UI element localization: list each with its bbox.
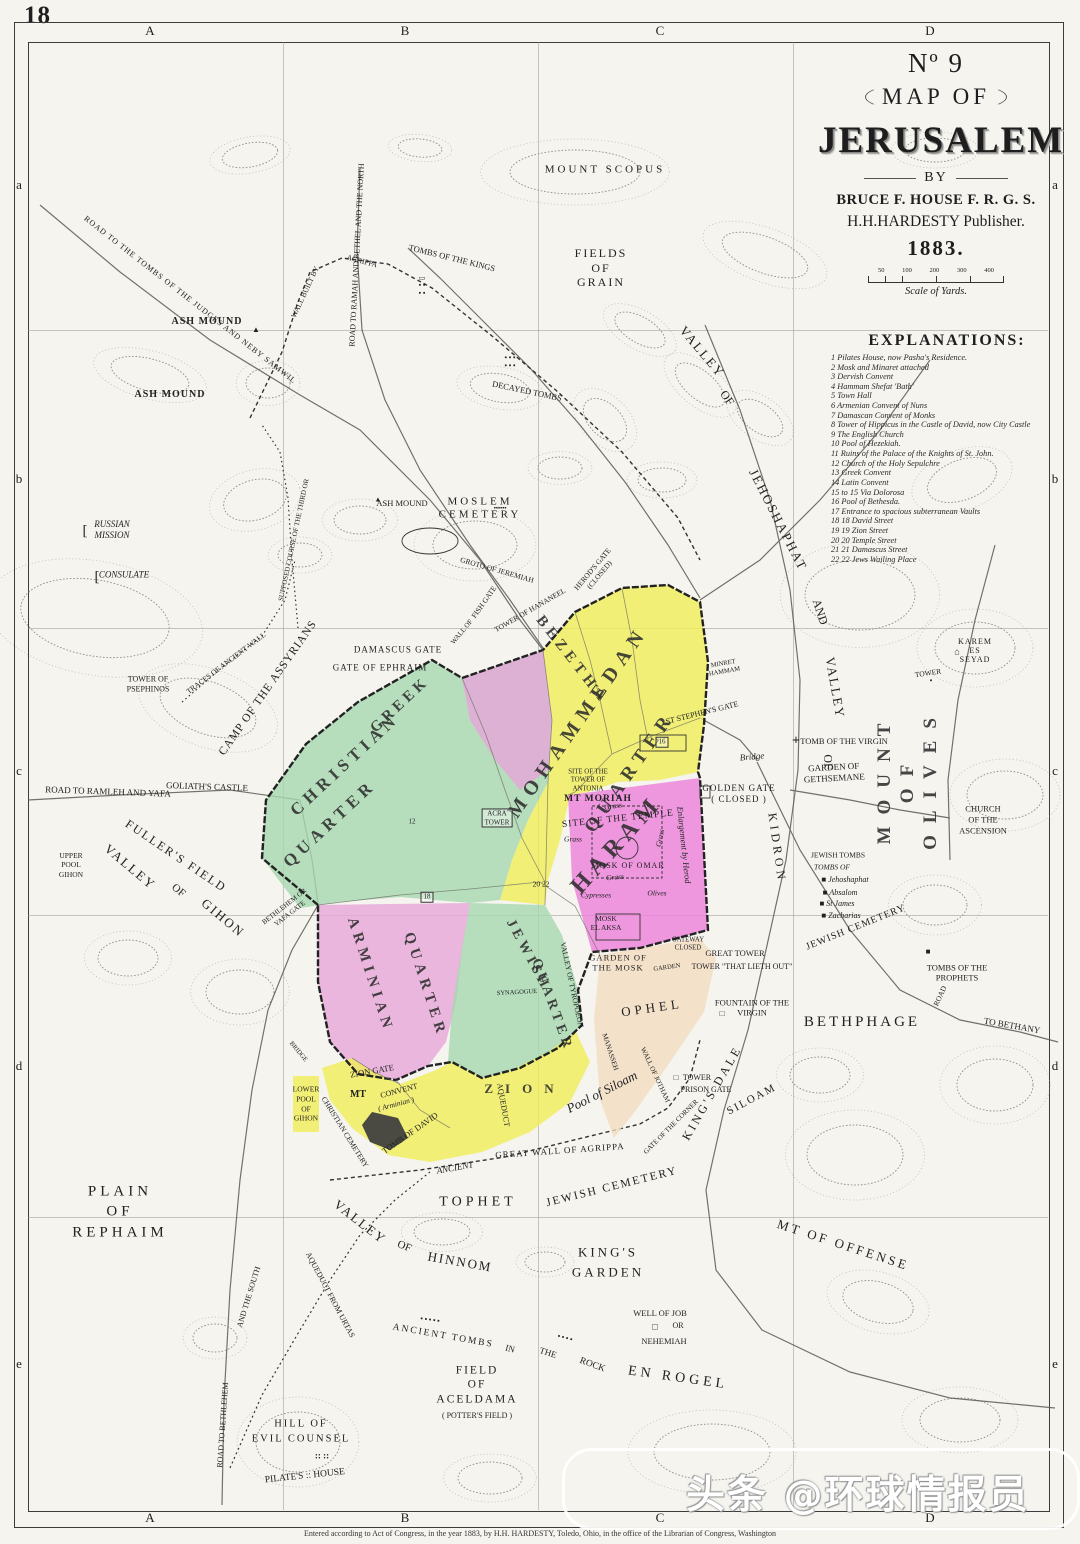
explanation-item: 10 Pool of Hezekiah. bbox=[831, 439, 1063, 449]
map-number: Nº 9 bbox=[818, 48, 1054, 79]
copyright-line: Entered according to Act of Congress, in… bbox=[0, 1529, 1080, 1538]
explanation-item: 4 Hammam Shefat 'Bath' bbox=[831, 382, 1063, 392]
by-label: BY bbox=[818, 170, 1054, 186]
explanation-item: 13 Greek Convent bbox=[831, 468, 1063, 478]
explanation-item: 21 21 Damascus Street bbox=[831, 545, 1063, 555]
map-page: 18 AABBCCDDaabbccddee bbox=[0, 0, 1080, 1544]
explanation-item: 9 The English Church bbox=[831, 430, 1063, 440]
explanation-item: 5 Town Hall bbox=[831, 391, 1063, 401]
explanation-item: 22 22 Jews Wailing Place bbox=[831, 555, 1063, 565]
explanation-item: 11 Ruins of the Palace of the Knights of… bbox=[831, 449, 1063, 459]
explanation-item: 17 Entrance to spacious subterranean Vau… bbox=[831, 507, 1063, 517]
explanation-item: 19 19 Zion Street bbox=[831, 526, 1063, 536]
explanation-item: 8 Tower of Hippicus in the Castle of Dav… bbox=[831, 420, 1063, 430]
explanation-item: 2 Mosk and Minaret attached bbox=[831, 363, 1063, 373]
scale-ticks: 50 100 200 300 400 bbox=[818, 267, 1054, 274]
explanation-item: 18 18 David Street bbox=[831, 516, 1063, 526]
explanation-item: 15 to 15 Via Dolorosa bbox=[831, 488, 1063, 498]
explanation-item: 7 Damascan Convent of Monks bbox=[831, 411, 1063, 421]
scale-label: Scale of Yards. bbox=[818, 286, 1054, 297]
explanation-item: 16 Pool of Bethesda. bbox=[831, 497, 1063, 507]
publisher-label: H.H.HARDESTY Publisher. bbox=[818, 213, 1054, 231]
explanation-item: 20 20 Temple Street bbox=[831, 536, 1063, 546]
explanation-item: 12 Church of the Holy Sepulchre bbox=[831, 459, 1063, 469]
explanation-item: 6 Armenian Convent of Nuns bbox=[831, 401, 1063, 411]
explanation-item: 3 Dervish Convent bbox=[831, 372, 1063, 382]
map-title: JERUSALEM bbox=[818, 119, 1054, 162]
author-label: BRUCE F. HOUSE F. R. G. S. bbox=[818, 192, 1054, 209]
watermark-text: 头条 @环球情报员 bbox=[686, 1464, 1076, 1520]
lower-pool-region bbox=[293, 1076, 319, 1132]
map-of-label: MAP OF bbox=[865, 81, 1007, 113]
title-block: Nº 9 MAP OF JERUSALEM BY BRUCE F. HOUSE … bbox=[818, 48, 1054, 297]
explanation-item: 14 Latin Convent bbox=[831, 478, 1063, 488]
explanation-item: 1 Pilates House, now Pasha's Residence. bbox=[831, 353, 1063, 363]
haram-region bbox=[568, 778, 708, 952]
scale-bar bbox=[868, 275, 1004, 283]
year-label: 1883. bbox=[818, 236, 1054, 261]
ophel-region bbox=[594, 938, 716, 1138]
explanations-heading: EXPLANATIONS: bbox=[831, 332, 1063, 350]
explanations-panel: EXPLANATIONS: 1 Pilates House, now Pasha… bbox=[831, 332, 1063, 564]
explanations-list: 1 Pilates House, now Pasha's Residence.2… bbox=[831, 353, 1063, 564]
